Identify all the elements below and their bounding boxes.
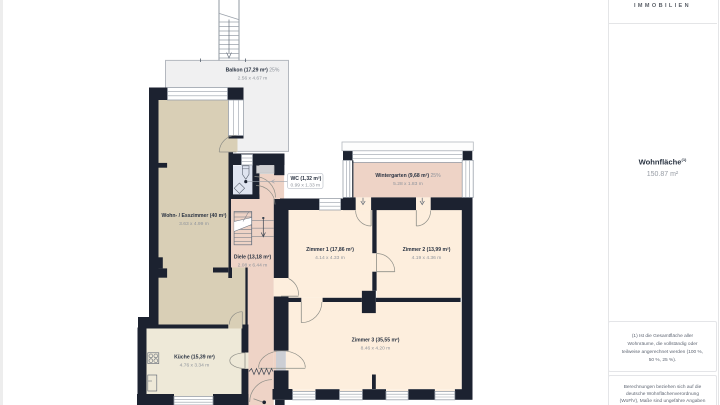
svg-text:4.19 x 4.36 m: 4.19 x 4.36 m (412, 255, 442, 261)
svg-text:Zimmer 1 (17,86 m²): Zimmer 1 (17,86 m²) (306, 247, 354, 253)
svg-text:5.28 x 1.83 m: 5.28 x 1.83 m (393, 181, 423, 187)
svg-text:0.99 x 1.33 m: 0.99 x 1.33 m (291, 182, 321, 188)
svg-text:3.63 x 4.99 m: 3.63 x 4.99 m (179, 221, 209, 227)
svg-text:4.76 x 3.34 m: 4.76 x 3.34 m (180, 362, 210, 368)
svg-text:8.46 x 4.20 m: 8.46 x 4.20 m (361, 345, 391, 351)
svg-text:WC (1,32 m²): WC (1,32 m²) (291, 176, 322, 182)
svg-text:4.14 x 4.33 m: 4.14 x 4.33 m (315, 255, 345, 261)
svg-text:Wohn- / Esszimmer (40 m²): Wohn- / Esszimmer (40 m²) (161, 213, 226, 219)
svg-text:Zimmer 2 (13,99 m²): Zimmer 2 (13,99 m²) (403, 247, 451, 253)
svg-text:Diele (13,18 m²): Diele (13,18 m²) (234, 255, 272, 261)
svg-text:Küche (15,39 m²): Küche (15,39 m²) (174, 355, 215, 361)
svg-text:2.08 x 6.44 m: 2.08 x 6.44 m (238, 262, 268, 268)
svg-text:Balkon (17,29 m²) 25%: Balkon (17,29 m²) 25% (226, 68, 280, 74)
svg-text:Wintergarten (9,68 m²) 25%: Wintergarten (9,68 m²) 25% (375, 173, 441, 179)
svg-text:2.56 x 4.67 m: 2.56 x 4.67 m (238, 75, 268, 81)
svg-text:Zimmer 3 (35,55 m²): Zimmer 3 (35,55 m²) (352, 338, 400, 344)
